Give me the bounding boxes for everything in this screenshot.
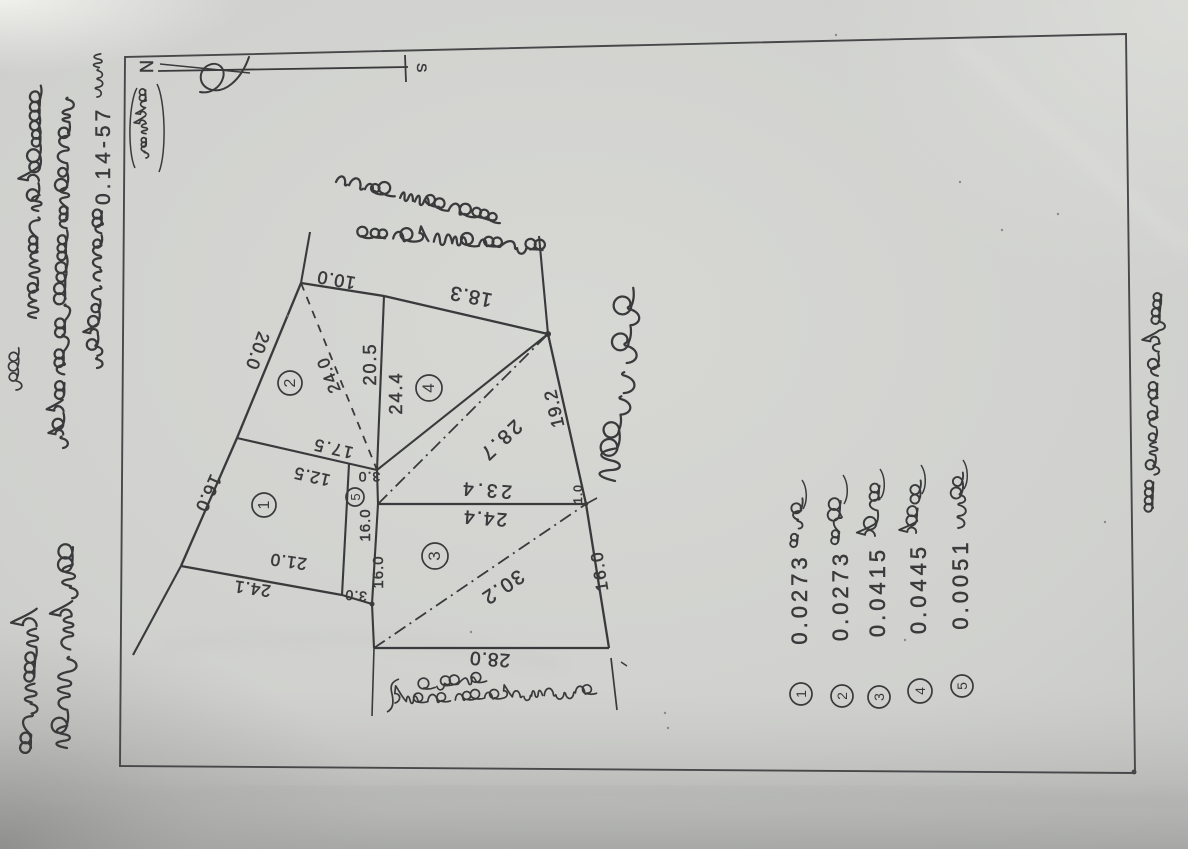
svg-text:0.0051: 0.0051	[948, 538, 973, 629]
svg-text:2: 2	[282, 378, 299, 387]
svg-text:3: 3	[871, 693, 887, 701]
svg-text:16.0: 16.0	[370, 555, 387, 588]
svg-text:4: 4	[419, 383, 438, 392]
svg-text:1: 1	[256, 500, 273, 509]
svg-text:0.0273: 0.0273	[787, 553, 812, 644]
svg-text:20.5: 20.5	[360, 342, 380, 385]
svg-text:0.0415: 0.0415	[865, 546, 890, 637]
svg-text:1: 1	[793, 690, 809, 698]
svg-text:0.0273: 0.0273	[828, 550, 853, 641]
svg-text:3.0: 3.0	[358, 469, 380, 485]
svg-text:24.4: 24.4	[386, 371, 406, 414]
svg-text:24.4: 24.4	[461, 505, 507, 529]
svg-text:16.0: 16.0	[357, 508, 374, 541]
svg-text:1.0: 1.0	[571, 484, 585, 504]
svg-text:28.0: 28.0	[468, 647, 510, 671]
svg-text:N: N	[136, 60, 156, 74]
svg-text:0.0445: 0.0445	[906, 543, 931, 634]
svg-text:5: 5	[348, 493, 363, 500]
svg-text:23.4: 23.4	[458, 477, 512, 502]
svg-text:2: 2	[834, 692, 850, 700]
svg-text:3: 3	[425, 551, 444, 560]
svg-text:3.0: 3.0	[344, 587, 368, 605]
svg-text:0.14-57: 0.14-57	[92, 106, 115, 205]
svg-text:5: 5	[954, 682, 970, 690]
svg-text:S: S	[414, 63, 430, 73]
svg-text:4: 4	[912, 687, 928, 695]
